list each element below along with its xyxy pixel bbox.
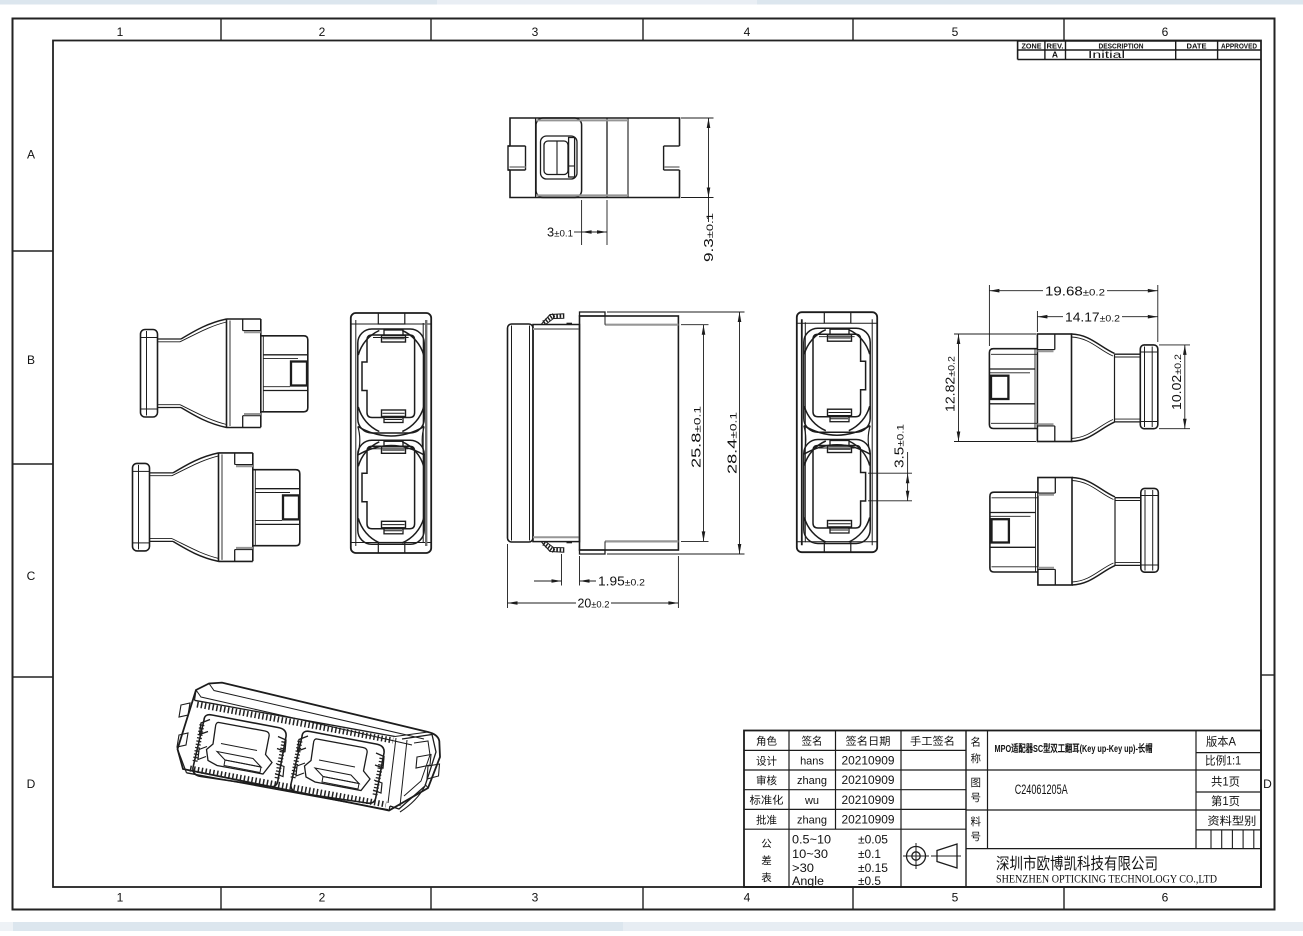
svg-text:3±0.1: 3±0.1 (547, 226, 573, 240)
svg-text:名: 名 (970, 736, 981, 749)
svg-text:±0.1: ±0.1 (858, 849, 881, 861)
svg-text:图: 图 (970, 777, 981, 789)
svg-text:20210909: 20210909 (842, 815, 895, 827)
svg-text:>30: >30 (792, 863, 814, 875)
svg-text:审核: 审核 (756, 774, 777, 787)
svg-text:28.4±0.1: 28.4±0.1 (726, 412, 740, 474)
svg-text:12.82±0.2: 12.82±0.2 (944, 356, 958, 412)
svg-text:wu: wu (804, 795, 819, 807)
svg-text:SHENZHEN OPTICKING TECHNOLOGY: SHENZHEN OPTICKING TECHNOLOGY CO.,LTD (996, 872, 1217, 886)
svg-text:9.3±0.1: 9.3±0.1 (702, 213, 716, 262)
svg-text:hans: hans (800, 756, 824, 768)
svg-text:ZONE: ZONE (1022, 43, 1042, 50)
svg-text:3: 3 (532, 891, 539, 905)
svg-text:zhang: zhang (797, 775, 827, 787)
svg-text:2: 2 (319, 25, 326, 39)
svg-text:角色: 角色 (756, 735, 777, 748)
svg-text:10.02±0.2: 10.02±0.2 (1170, 354, 1184, 410)
svg-text:共1页: 共1页 (1211, 776, 1240, 789)
svg-text:料: 料 (970, 815, 981, 828)
svg-text:D: D (27, 777, 36, 791)
svg-text:表: 表 (761, 871, 772, 884)
svg-text:C24061205A: C24061205A (1015, 782, 1068, 797)
svg-text:号: 号 (970, 792, 981, 804)
svg-text:4: 4 (744, 891, 751, 905)
svg-text:6: 6 (1162, 891, 1169, 905)
svg-text:1.95±0.2: 1.95±0.2 (598, 575, 645, 589)
svg-text:D: D (1263, 777, 1272, 791)
svg-text:版本A: 版本A (1206, 735, 1236, 749)
svg-text:号: 号 (970, 831, 981, 843)
svg-text:设计: 设计 (756, 754, 777, 767)
svg-text:25.8±0.1: 25.8±0.1 (690, 406, 704, 468)
svg-text:签名日期: 签名日期 (846, 735, 891, 748)
svg-text:±0.15: ±0.15 (858, 863, 888, 875)
svg-text:Initial: Initial (1088, 50, 1125, 61)
svg-text:比例1:1: 比例1:1 (1205, 754, 1241, 768)
svg-text:zhang: zhang (797, 815, 827, 827)
svg-text:A: A (27, 148, 35, 162)
svg-text:MPO适配器SC型双工翻耳(Key up-Key up)-长: MPO适配器SC型双工翻耳(Key up-Key up)-长帽 (995, 742, 1153, 755)
svg-text:6: 6 (1162, 25, 1169, 39)
svg-text:1: 1 (117, 25, 124, 39)
svg-text:差: 差 (761, 854, 772, 867)
svg-text:B: B (27, 353, 35, 367)
svg-text:公: 公 (761, 838, 772, 850)
svg-text:第1页: 第1页 (1211, 794, 1240, 808)
svg-text:手工签名: 手工签名 (910, 735, 955, 748)
svg-text:C: C (27, 569, 36, 583)
svg-text:DATE: DATE (1187, 43, 1207, 50)
svg-text:20210909: 20210909 (842, 756, 895, 768)
svg-text:2: 2 (319, 891, 326, 905)
svg-text:19.68±0.2: 19.68±0.2 (1045, 284, 1105, 298)
svg-text:10~30: 10~30 (792, 849, 828, 861)
svg-text:3.5±0.1: 3.5±0.1 (893, 424, 907, 468)
svg-text:0.5~10: 0.5~10 (792, 835, 831, 847)
svg-text:标准化: 标准化 (750, 794, 785, 807)
svg-text:深圳市欧博凯科技有限公司: 深圳市欧博凯科技有限公司 (996, 855, 1158, 873)
svg-text:5: 5 (952, 891, 959, 905)
svg-text:1: 1 (117, 891, 124, 905)
svg-text:4: 4 (744, 25, 751, 39)
svg-text:APPROVED: APPROVED (1221, 43, 1257, 50)
svg-text:A: A (1052, 50, 1058, 60)
svg-text:20210909: 20210909 (842, 775, 895, 787)
svg-text:资料型别: 资料型别 (1207, 814, 1256, 828)
svg-text:14.17±0.2: 14.17±0.2 (1065, 310, 1120, 324)
svg-text:Angle: Angle (792, 876, 824, 888)
svg-text:5: 5 (952, 25, 959, 39)
svg-text:20±0.2: 20±0.2 (578, 597, 610, 611)
svg-text:±0.05: ±0.05 (858, 835, 888, 847)
svg-text:20210909: 20210909 (842, 795, 895, 807)
svg-text:批准: 批准 (756, 813, 777, 826)
svg-text:±0.5: ±0.5 (858, 876, 881, 888)
svg-text:称: 称 (970, 752, 981, 765)
svg-text:签名: 签名 (802, 735, 823, 748)
svg-text:3: 3 (532, 25, 539, 39)
